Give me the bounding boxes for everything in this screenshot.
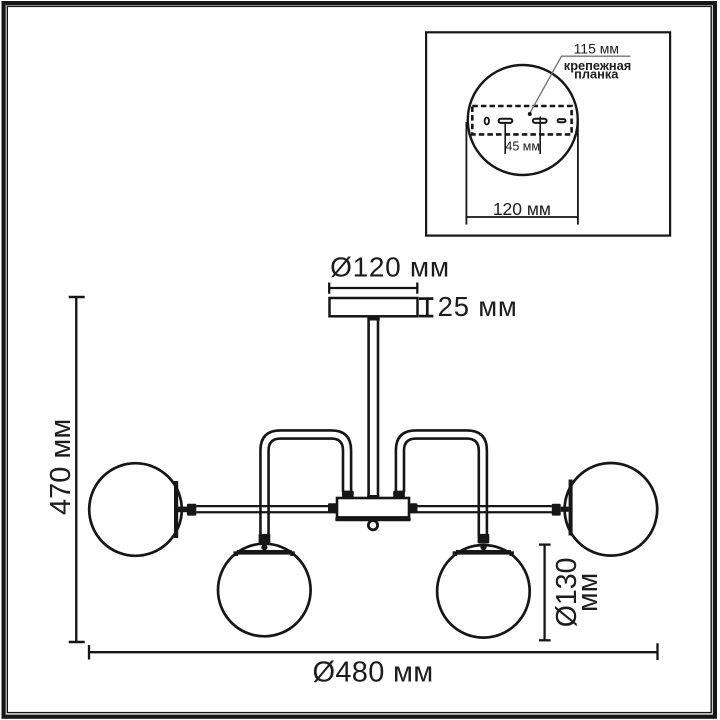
svg-text:Ø120 мм: Ø120 мм: [330, 251, 450, 282]
svg-text:планка: планка: [574, 66, 619, 81]
svg-text:мм: мм: [572, 573, 604, 612]
svg-text:120 мм: 120 мм: [493, 199, 551, 219]
svg-text:Ø480 мм: Ø480 мм: [313, 657, 434, 689]
svg-text:115 мм: 115 мм: [574, 40, 619, 56]
svg-text:25 мм: 25 мм: [438, 291, 518, 322]
svg-text:470 мм: 470 мм: [45, 419, 77, 515]
svg-text:45 мм: 45 мм: [505, 140, 540, 154]
